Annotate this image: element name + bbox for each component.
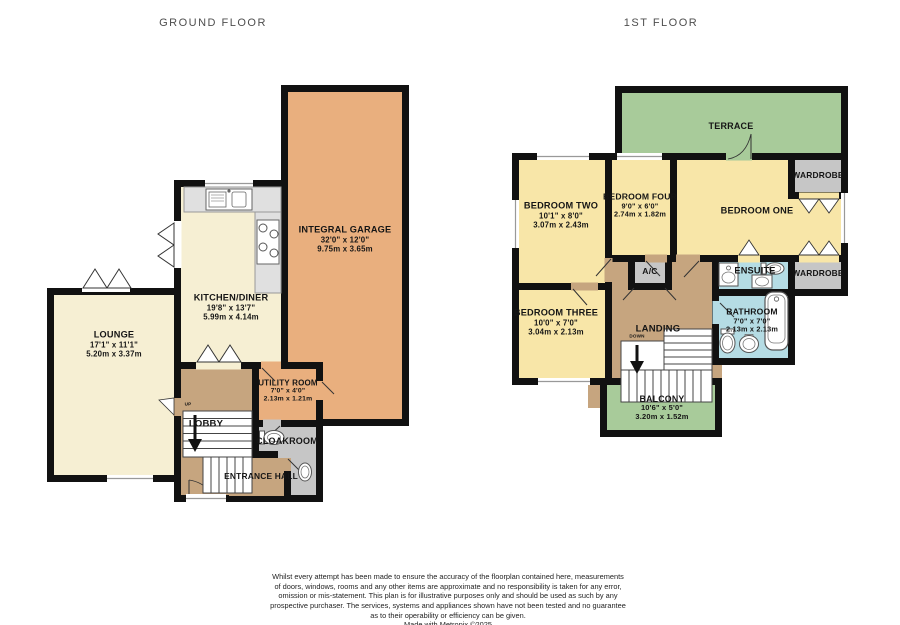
lounge-name: LOUNGE (86, 330, 142, 341)
bedroom-two-dim-imperial: 10'1" x 8'0" (524, 211, 598, 220)
utility-label: UTILITY ROOM 7'0" x 4'0" 2.13m x 1.21m (258, 378, 318, 403)
lobby-label: LOBBY (189, 418, 223, 429)
hob (257, 220, 279, 264)
balcony-dim-metric: 3.20m x 1.52m (635, 413, 688, 422)
bedroom-three-dim-metric: 3.04m x 2.13m (514, 327, 598, 336)
bedroom-three-label: BEDROOM THREE 10'0" x 7'0" 3.04m x 2.13m (514, 308, 598, 337)
garage-label: INTEGRAL GARAGE 32'0" x 12'0" 9.75m x 3.… (299, 225, 392, 254)
bedroom-four-dim-metric: 2.74m x 1.82m (603, 211, 677, 219)
entrance-hall-label: ENTRANCE HALL (224, 472, 298, 482)
up-label: UP (185, 401, 192, 406)
bathroom-label: BATHROOM 7'0" x 7'0" 2.13m x 2.13m (726, 308, 778, 335)
floorplan-canvas: GROUND FLOOR 1ST FLOOR INTEGRAL GARAGE 3… (0, 0, 900, 625)
wardrobe-bottom-label: WARDROBE (792, 269, 843, 279)
utility-dim-metric: 2.13m x 1.21m (258, 396, 318, 404)
ensuite-label: ENSUITE (734, 266, 775, 277)
ensuite-basin (752, 275, 772, 288)
disclaimer-text: Whilst every attempt has been made to en… (228, 572, 668, 625)
cloakroom-label: CLOAKROOM (256, 436, 318, 446)
utility-name: UTILITY ROOM (258, 378, 318, 387)
bedroom-three-dim-imperial: 10'0" x 7'0" (514, 318, 598, 327)
terrace-label: TERRACE (709, 121, 754, 131)
down-label: DOWN (629, 333, 644, 338)
french-doors (82, 269, 131, 292)
first-floor-title: 1ST FLOOR (624, 17, 698, 29)
ground-floor-title: GROUND FLOOR (159, 17, 267, 29)
wardrobe-top-label: WARDROBE (792, 171, 843, 181)
ac-label: A/C (642, 267, 657, 277)
lounge-dim-metric: 5.20m x 3.37m (86, 349, 142, 358)
bedroom-three-name: BEDROOM THREE (514, 308, 598, 319)
cloakroom-basin (299, 463, 312, 481)
garage-dim-imperial: 32'0" x 12'0" (299, 235, 392, 244)
kitchen-label: KITCHEN/DINER 19'8" x 13'7" 5.99m x 4.14… (194, 293, 269, 322)
bedroom-one-label: BEDROOM ONE (721, 206, 794, 217)
lounge-room (51, 292, 178, 479)
balcony-label: BALCONY 10'6" x 5'0" 3.20m x 1.52m (635, 394, 688, 422)
lounge-dim-imperial: 17'1" x 11'1" (86, 340, 142, 349)
bedroom-two-label: BEDROOM TWO 10'1" x 8'0" 3.07m x 2.43m (524, 201, 598, 230)
first-floor-plan (512, 90, 848, 434)
bathroom-dim-metric: 2.13m x 2.13m (726, 326, 778, 334)
kitchen-name: KITCHEN/DINER (194, 293, 269, 304)
bedroom-two-name: BEDROOM TWO (524, 201, 598, 212)
kitchen-side-doors (158, 221, 182, 268)
kitchen-dim-metric: 5.99m x 4.14m (194, 312, 269, 321)
garage-name: INTEGRAL GARAGE (299, 225, 392, 236)
kitchen-dim-imperial: 19'8" x 13'7" (194, 303, 269, 312)
bedroom-four-label: BEDROOM FOUR 9'0" x 6'0" 2.74m x 1.82m (603, 193, 677, 220)
garage-dim-metric: 9.75m x 3.65m (299, 244, 392, 253)
bedroom-two-dim-metric: 3.07m x 2.43m (524, 220, 598, 229)
lounge-label: LOUNGE 17'1" x 11'1" 5.20m x 3.37m (86, 330, 142, 359)
utility-dim-imperial: 7'0" x 4'0" (258, 388, 318, 396)
kitchen-sink (206, 189, 252, 210)
